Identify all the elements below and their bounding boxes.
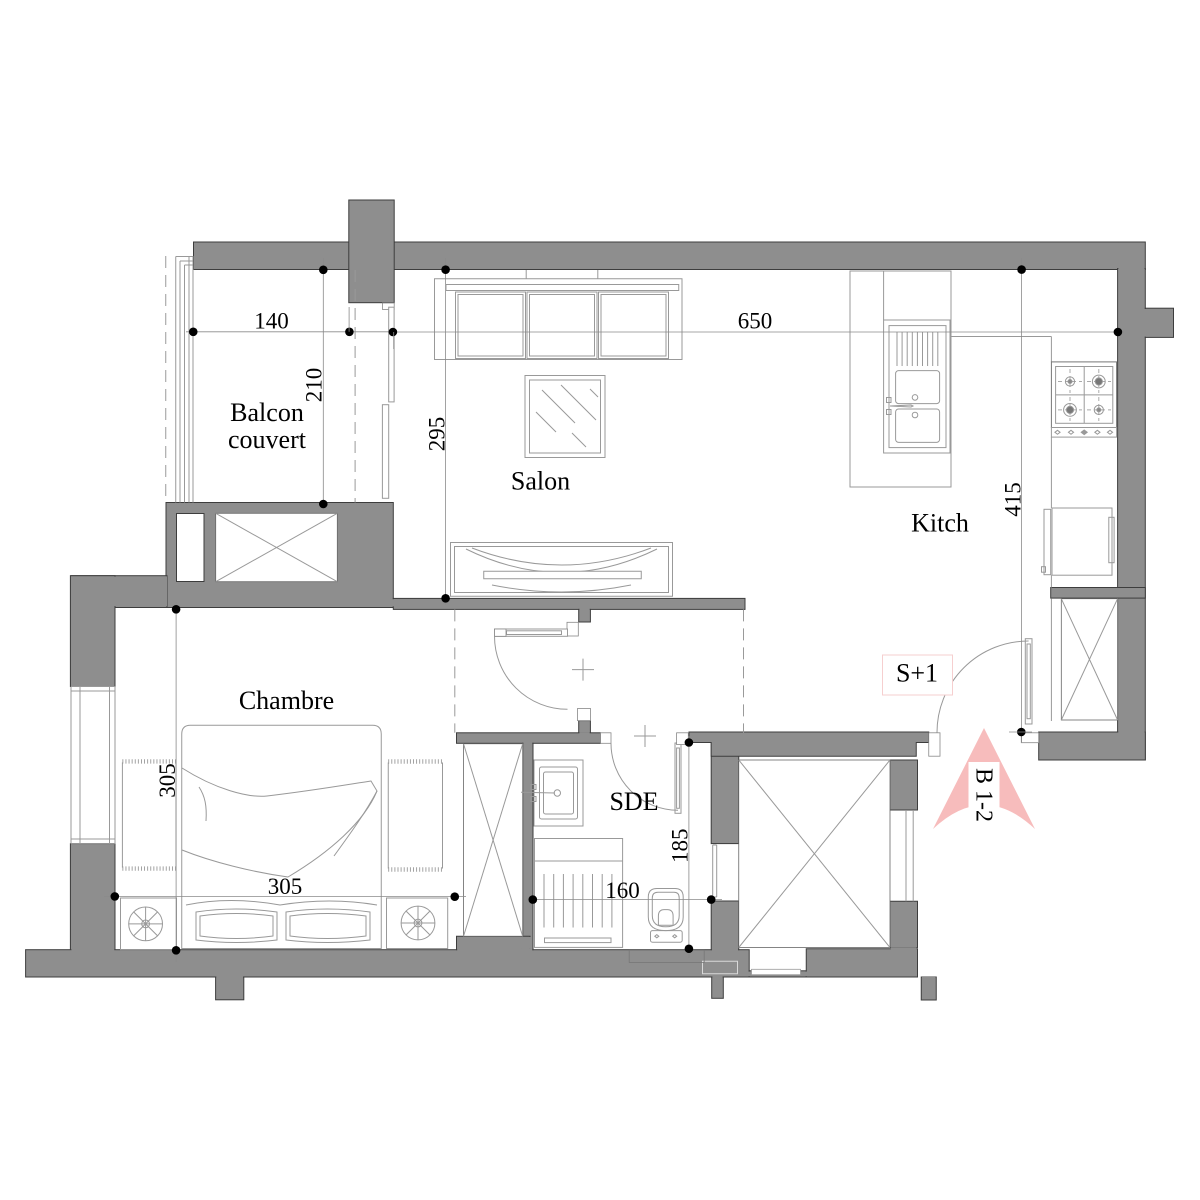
svg-text:B 1-2: B 1-2: [971, 768, 997, 822]
svg-text:305: 305: [155, 763, 180, 798]
svg-text:S+1: S+1: [896, 659, 938, 688]
svg-text:210: 210: [302, 368, 327, 403]
svg-text:185: 185: [668, 829, 693, 864]
svg-text:couvert: couvert: [228, 425, 307, 454]
svg-text:140: 140: [254, 309, 289, 334]
svg-text:305: 305: [268, 874, 303, 899]
svg-text:415: 415: [1001, 482, 1026, 517]
svg-text:650: 650: [738, 309, 773, 334]
svg-text:295: 295: [425, 417, 450, 452]
svg-text:Kitch: Kitch: [911, 509, 969, 538]
svg-text:SDE: SDE: [609, 787, 658, 816]
svg-text:Balcon: Balcon: [230, 398, 304, 427]
svg-text:Chambre: Chambre: [239, 686, 334, 715]
svg-text:Salon: Salon: [511, 467, 570, 496]
svg-text:160: 160: [605, 878, 640, 903]
